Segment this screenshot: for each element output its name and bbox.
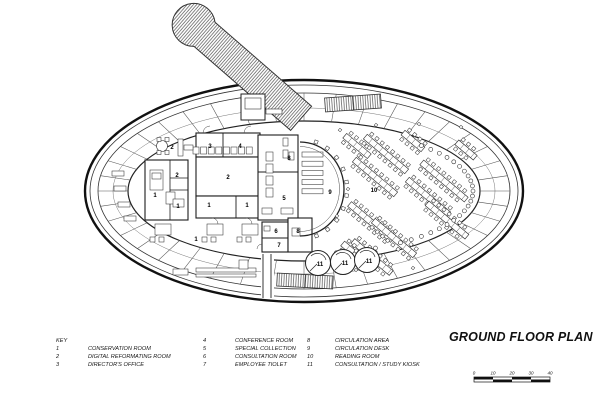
scale-bar: 010203040 [473, 371, 553, 383]
scale-label: 40 [547, 371, 553, 376]
scale-label: 10 [490, 371, 496, 376]
desk-chair [314, 234, 318, 238]
study-chair [437, 151, 441, 155]
furniture-item [266, 188, 273, 197]
furniture-item [157, 151, 161, 155]
furniture-item [246, 147, 252, 154]
bottom-passage [261, 254, 274, 298]
room-number-label: 11 [317, 262, 324, 268]
furniture-item [173, 269, 188, 275]
floor-plan-sheet: 111112223456788910111111 010203040 GROUN… [0, 0, 610, 406]
furniture-item [202, 237, 207, 242]
study-chair [429, 147, 433, 151]
desk-chair [345, 194, 349, 198]
rooms-conservation-small [196, 196, 260, 218]
study-chair [429, 231, 433, 235]
desk-chair [345, 180, 349, 184]
furniture-item [302, 170, 323, 175]
furniture-item [178, 139, 183, 156]
round-table [157, 141, 168, 152]
scale-label: 30 [528, 371, 534, 376]
furniture-item [266, 176, 273, 185]
furniture-item [118, 202, 130, 207]
furniture-item [302, 180, 323, 185]
furniture-item [124, 216, 136, 221]
furniture-item [302, 189, 323, 194]
study-chair [419, 144, 423, 148]
furniture-item [302, 152, 323, 157]
study-chair [462, 209, 466, 213]
furniture-item [283, 138, 288, 146]
furniture-item [114, 186, 126, 191]
furniture-item [216, 147, 222, 154]
furniture-item [193, 147, 199, 154]
room-number-label: 11 [366, 259, 373, 265]
furniture-item [242, 224, 258, 235]
furniture-item [231, 147, 237, 154]
furniture-item [211, 237, 216, 242]
study-chair [419, 234, 423, 238]
page-title: GROUND FLOOR PLAN [449, 330, 593, 344]
furniture-item [264, 226, 270, 231]
furniture-item [239, 260, 248, 269]
study-chair [466, 204, 470, 208]
furniture-item [155, 224, 171, 235]
study-chair [470, 184, 474, 188]
study-chair [398, 241, 402, 245]
furniture-item [201, 147, 207, 154]
room-number-label: 10 [371, 188, 378, 194]
study-chair [471, 189, 475, 193]
furniture-item [157, 138, 161, 142]
study-chair [458, 164, 462, 168]
furniture-item [266, 164, 273, 173]
study-chair [458, 214, 462, 218]
study-chair [466, 174, 470, 178]
furniture-item [196, 274, 256, 277]
furniture-item [246, 237, 251, 242]
furniture-item [223, 147, 229, 154]
study-chair [469, 199, 473, 203]
scale-label: 0 [473, 371, 476, 376]
study-chair [452, 160, 456, 164]
study-chair [409, 238, 413, 242]
study-chair [452, 218, 456, 222]
scale-label: 20 [508, 371, 515, 376]
furniture-item [112, 171, 124, 176]
furniture-item [302, 161, 323, 166]
study-chair [470, 194, 474, 198]
furniture-item [237, 237, 242, 242]
furniture-item [207, 224, 223, 235]
furniture-item [281, 208, 293, 214]
furniture-item [165, 151, 169, 155]
study-chair [445, 155, 449, 159]
study-chair [437, 227, 441, 231]
furniture-item [165, 138, 169, 142]
study-chair [445, 223, 449, 227]
furniture-item [159, 237, 164, 242]
study-chair [462, 169, 466, 173]
stair-bottom [277, 273, 334, 289]
study-chair [469, 179, 473, 183]
furniture-item [152, 173, 161, 179]
floor-plan-drawing: 111112223456788910111111 010203040 [0, 0, 610, 406]
furniture-item [262, 208, 272, 214]
room-number-label: 11 [342, 261, 349, 267]
room-special-collection [258, 135, 298, 220]
desk-chair [314, 140, 318, 144]
furniture-item [184, 145, 193, 150]
furniture-item [266, 152, 273, 161]
furniture-item [150, 237, 155, 242]
